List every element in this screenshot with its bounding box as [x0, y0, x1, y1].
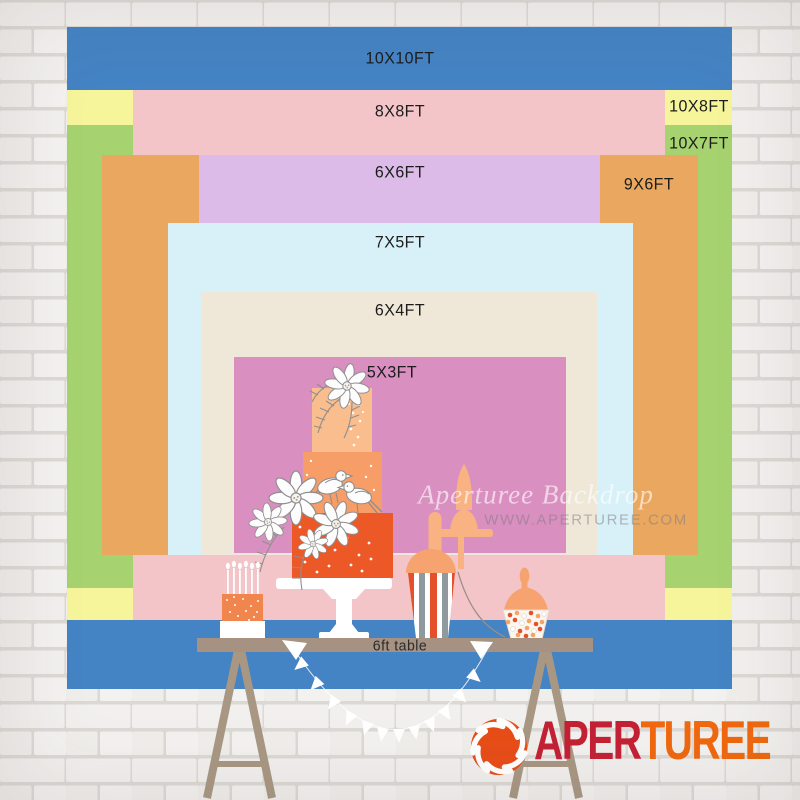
size-label-9x6ft: 9X6FT [624, 176, 674, 193]
bunting-garland [282, 640, 493, 743]
size-label-8x8ft: 8X8FT [375, 103, 425, 120]
cake-stand [276, 578, 392, 640]
size-label-6x4ft: 6X4FT [375, 302, 425, 319]
size-label-6x6ft: 6X6FT [375, 164, 425, 181]
table-size-label: 6ft table [373, 639, 427, 654]
size-label-7x5ft: 7X5FT [375, 234, 425, 251]
glass-jar-outline [458, 572, 505, 637]
backdrop-size-chart-image: Aperturee Backdrop WWW.APERTUREE.COM 10X… [0, 0, 800, 800]
candle-cake [220, 561, 265, 640]
logo-wordmark: APERTUREE [534, 714, 770, 769]
candy-jar [503, 568, 549, 640]
logo-wordmark-part2: TUREE [640, 711, 770, 772]
size-label-5x3ft: 5X3FT [367, 364, 417, 381]
popcorn-box [406, 549, 457, 638]
aperture-icon [468, 716, 530, 778]
logo-wordmark-part1: APER [534, 711, 640, 772]
size-label-10x7ft: 10X7FT [669, 135, 729, 152]
size-label-10x10ft: 10X10FT [365, 50, 434, 67]
aperturee-logo: APERTUREE [468, 710, 788, 788]
size-label-10x8ft: 10X8FT [669, 98, 729, 115]
